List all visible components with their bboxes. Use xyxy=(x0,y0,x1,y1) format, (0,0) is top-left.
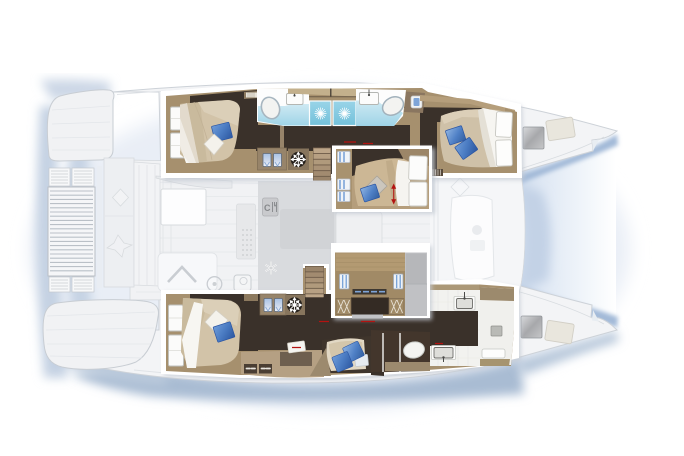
svg-text:C: C xyxy=(264,203,271,213)
